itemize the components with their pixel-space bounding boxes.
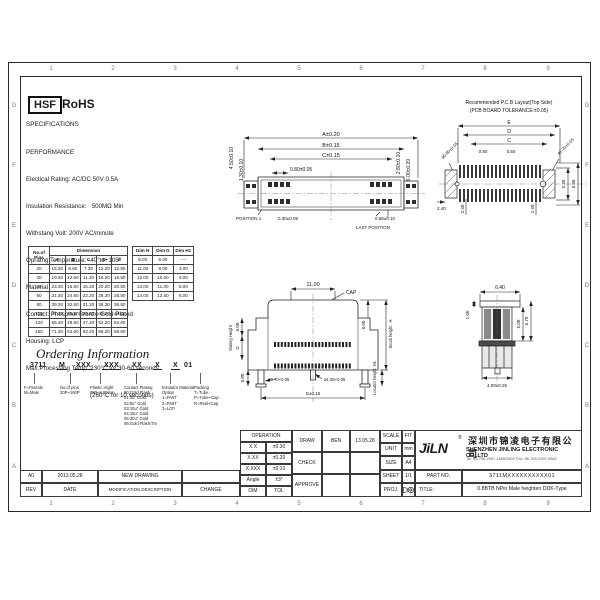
leader-line bbox=[200, 373, 201, 384]
hole-left-callout: ø0.80±0.05 bbox=[440, 141, 459, 160]
dim-header: DIM bbox=[240, 486, 266, 497]
position1-label: POSITION 1 bbox=[236, 216, 262, 221]
pin-dia-1: ø0.70+0.05 bbox=[268, 377, 290, 382]
cell: 16.60 bbox=[65, 283, 81, 292]
approve-date bbox=[350, 474, 380, 497]
legend-height: Plastic Hight 080=8.00mm bbox=[90, 385, 126, 395]
dim-d: D±0.15 bbox=[306, 391, 321, 396]
cell: 23.20 bbox=[81, 292, 97, 301]
zone-number: 5 bbox=[268, 63, 330, 75]
zone-number: 2 bbox=[82, 498, 144, 510]
zone-number: 6 bbox=[330, 498, 392, 510]
cell: 9.00 bbox=[153, 265, 173, 274]
dim-100: 1.00 bbox=[465, 310, 470, 319]
spec-line: PERFORMANCE bbox=[26, 148, 159, 157]
zone-letter: A bbox=[8, 436, 20, 497]
cell: 6.00 bbox=[153, 256, 173, 265]
zone-number: 3 bbox=[144, 498, 206, 510]
legend-packing: Packing T=Tube P=Tube+Cap R=Reel+Cap bbox=[194, 385, 230, 406]
cell: 12.60 bbox=[65, 274, 81, 283]
dim-8: 8.00 bbox=[361, 320, 366, 329]
cell: 47.20 bbox=[81, 319, 97, 328]
date-header: DATE bbox=[42, 483, 98, 497]
cell: 32.60 bbox=[65, 301, 81, 310]
approve-label: APPROVE bbox=[292, 474, 322, 497]
cell: 8.00 bbox=[133, 256, 153, 265]
dim-c: C bbox=[507, 138, 511, 144]
legend-plating: Contact Plating 00:Gold Flash 01:3u" Gol… bbox=[124, 385, 160, 427]
pcb-tolerance: (PCB BOARD TOLERANCE:±0.05) bbox=[470, 108, 549, 114]
cell: 31.30 bbox=[50, 292, 66, 301]
table-row: 3019.3012.6011.2016.2016.80 bbox=[29, 274, 128, 283]
col-header: A bbox=[50, 256, 66, 265]
leader-line bbox=[170, 373, 171, 384]
table-row: 16071.3064.6063.2068.2068.80 bbox=[29, 328, 128, 337]
modification-header: MODIFICATION DESCRIPTION bbox=[98, 483, 182, 497]
zone-number: 2 bbox=[82, 63, 144, 75]
sheet-value: 1/1 bbox=[402, 470, 415, 483]
dim-6: 6.00 bbox=[235, 322, 240, 331]
cell: 11.00 bbox=[133, 265, 153, 274]
scale-label: SCALE bbox=[380, 430, 402, 443]
spec-line: Housing: LCP bbox=[26, 337, 159, 346]
table-row: 11.009.003.00 bbox=[133, 265, 194, 274]
approve-name bbox=[322, 474, 350, 497]
cell: 16.20 bbox=[96, 274, 112, 283]
table-row: 8.006.00---- bbox=[133, 256, 194, 265]
tol-value: ±0.20 bbox=[266, 453, 292, 464]
zone-letter: B bbox=[582, 376, 592, 436]
dim-bot1: 0.30±0.05 bbox=[278, 216, 298, 221]
scale-value: FIT bbox=[402, 430, 415, 443]
third-angle-projection-icon bbox=[403, 486, 414, 494]
company-logo: JiLN bbox=[419, 440, 447, 456]
stock-height-label: Stock heightH bbox=[388, 319, 393, 348]
table-row: 6031.3024.6023.2028.2028.80 bbox=[29, 292, 128, 301]
dim-right2: 6.00±0.20 bbox=[406, 159, 412, 181]
drawing-title: 0.8BTB NPin Male heighten DDK-Type bbox=[462, 483, 582, 497]
cell: 52.20 bbox=[96, 319, 112, 328]
stock-height-text: Stock height bbox=[388, 325, 393, 349]
zone-letter: C bbox=[8, 316, 20, 376]
dim-h1: 5.40 bbox=[561, 179, 566, 188]
cell: 19.30 bbox=[50, 274, 66, 283]
zone-number: 1 bbox=[20, 63, 82, 75]
table-row: 13.0011.005.00 bbox=[133, 283, 194, 292]
connector-top-view: A±0.20 B±0.15 C±0.15 0.80±0.05 4.50±0.10… bbox=[228, 128, 435, 238]
tol-label: X.X bbox=[240, 442, 266, 453]
zone-number: 9 bbox=[516, 498, 580, 510]
cell: 12.00 bbox=[153, 292, 173, 301]
company-block: JiLN ® 深圳市锦凌电子有限公司 SHENZHEN JINLING ELEC… bbox=[415, 430, 582, 470]
check-label: CHECK bbox=[292, 452, 322, 474]
locator-height-text: Locator height bbox=[372, 368, 377, 395]
cell: 31.20 bbox=[81, 301, 97, 310]
cell: 14.00 bbox=[133, 292, 153, 301]
zone-letter: G bbox=[8, 76, 20, 136]
col-header: C bbox=[81, 256, 97, 265]
zone-number: 9 bbox=[516, 63, 580, 75]
proj-symbol-cell bbox=[402, 483, 415, 497]
col-header: Dim H bbox=[133, 247, 153, 256]
ordering-title: Ordering Information bbox=[36, 346, 149, 362]
operation-header: OPERATION bbox=[240, 430, 292, 442]
check-date bbox=[350, 452, 380, 474]
zone-number: 8 bbox=[454, 63, 516, 75]
unit-value: mm bbox=[402, 443, 415, 456]
cell: 71.30 bbox=[50, 328, 66, 337]
cell: 52.80 bbox=[112, 319, 128, 328]
rev-value: A0 bbox=[20, 470, 42, 483]
dim-right1: 2.80±0.10 bbox=[396, 152, 402, 174]
col-header: Dim H1 bbox=[173, 247, 193, 256]
draw-date: 13.05.28 bbox=[350, 430, 380, 452]
col-header: B bbox=[65, 256, 81, 265]
zone-letter: D bbox=[8, 256, 20, 316]
leader-line bbox=[70, 373, 71, 384]
cell: 63.20 bbox=[81, 328, 97, 337]
order-code-material: X bbox=[153, 362, 162, 370]
zone-number: 7 bbox=[392, 63, 454, 75]
cell: 55.30 bbox=[50, 319, 66, 328]
legend-material: Insulator Material Option 1=PA9T 2=PA6T … bbox=[162, 385, 198, 411]
cell: 11.00 bbox=[153, 283, 173, 292]
rev-header: REV bbox=[20, 483, 42, 497]
draw-name: BEN bbox=[322, 430, 350, 452]
dim-500: 5.00 bbox=[516, 319, 521, 328]
dim-080: 0.80 bbox=[240, 373, 245, 382]
hole-right-callout: ø1.20±0.05 bbox=[556, 137, 575, 156]
pcb-layout-view: Recommended P.C.B Layout(Top Side) (PCB … bbox=[435, 95, 593, 225]
zone-letter: C bbox=[582, 316, 592, 376]
zone-letter: A bbox=[582, 436, 592, 497]
cell: 3.00 bbox=[173, 265, 193, 274]
cell: 40 bbox=[29, 283, 50, 292]
cell: 39.30 bbox=[50, 301, 66, 310]
zone-number: 4 bbox=[206, 498, 268, 510]
cell: 5.00 bbox=[173, 283, 193, 292]
legend-line: M=Male bbox=[24, 390, 60, 395]
cell: 36.20 bbox=[96, 301, 112, 310]
dim-b: B±0.15 bbox=[322, 143, 339, 149]
cell: 16.80 bbox=[112, 274, 128, 283]
rev-description: NEW DRAWING bbox=[98, 470, 182, 483]
cell: 44.80 bbox=[112, 310, 128, 319]
cell: 15.30 bbox=[50, 265, 66, 274]
order-code-gender: M bbox=[57, 362, 67, 370]
cell: 28.20 bbox=[96, 292, 112, 301]
cell: 23.30 bbox=[50, 283, 66, 292]
tol-value: ±0.30 bbox=[266, 442, 292, 453]
cell: 48.60 bbox=[65, 319, 81, 328]
table-row: 8039.3032.6031.2036.2036.80 bbox=[29, 301, 128, 310]
cell: 4.00 bbox=[173, 274, 193, 283]
title-label: TITLE: bbox=[415, 483, 462, 497]
table-row: 12055.3048.6047.2052.2052.80 bbox=[29, 319, 128, 328]
cell: 40.60 bbox=[65, 310, 81, 319]
height-dimension-table: Dim H Dim G Dim H1 8.006.00---- 11.009.0… bbox=[132, 246, 194, 301]
last-position-label: LAST POSITION bbox=[356, 225, 390, 230]
cell: 39.20 bbox=[81, 310, 97, 319]
part-no-value: 3711MXXXXXXXXXX01 bbox=[462, 470, 582, 483]
mating-height-label: Mating Height bbox=[228, 324, 233, 351]
col-header: Dim G bbox=[153, 247, 173, 256]
dim-bot2: 0.65±0.10 bbox=[375, 216, 395, 221]
dim-pitch2: 0.50 bbox=[507, 149, 516, 154]
pin-dia-2: ø1.05+0.05 bbox=[324, 377, 346, 382]
specifications-title: SPECIFICATIONS bbox=[26, 121, 79, 128]
stock-height-h: H bbox=[388, 319, 393, 322]
hsf-logo: HSF bbox=[28, 96, 62, 114]
zone-number: 6 bbox=[330, 63, 392, 75]
cell: 68.20 bbox=[96, 328, 112, 337]
leader-line bbox=[34, 373, 35, 384]
order-code-pins: XXX bbox=[74, 362, 93, 370]
zone-number: 4 bbox=[206, 63, 268, 75]
cell: 80 bbox=[29, 301, 50, 310]
leader-line bbox=[136, 373, 137, 384]
cell: 68.80 bbox=[112, 328, 128, 337]
order-code-plating: XX bbox=[130, 362, 144, 370]
registered-mark-icon: ® bbox=[458, 435, 462, 441]
table-row: 4023.3016.6015.2020.2020.80 bbox=[29, 283, 128, 292]
table-row: 2015.308.607.2012.2012.80 bbox=[29, 265, 128, 274]
cap-label: CAP bbox=[346, 290, 357, 296]
locator-height-label: Locator heightH1 bbox=[372, 360, 377, 395]
zone-letter: E bbox=[8, 196, 20, 256]
legend-line: R=Reel+Cap bbox=[194, 401, 230, 406]
legend-line: 06:Gold Flash/Tin bbox=[124, 421, 160, 426]
change-header: CHANGE bbox=[182, 483, 240, 497]
proj-label: PROJ. bbox=[380, 483, 402, 497]
part-no-label: PART NO. bbox=[415, 470, 462, 483]
body-outline bbox=[479, 301, 520, 374]
cell: 28.80 bbox=[112, 292, 128, 301]
tol-label: X.XX bbox=[240, 453, 266, 464]
connector-front-view: 11.00 CAP 6.00 G Mating Height 8.00 Stoc… bbox=[228, 272, 405, 408]
connector-side-view: 6.40 1.00 5.00 5.70 4.00±0.25 bbox=[455, 275, 550, 400]
legend-line: 080=8.00mm bbox=[90, 390, 126, 395]
order-code-packing: X bbox=[171, 362, 180, 370]
cell: 44.20 bbox=[96, 310, 112, 319]
locator-height-h1: H1 bbox=[372, 360, 377, 366]
zone-number: 3 bbox=[144, 63, 206, 75]
zone-number: 1 bbox=[20, 498, 82, 510]
cell: 12.20 bbox=[96, 265, 112, 274]
table-row: 14.0012.006.00 bbox=[133, 292, 194, 301]
zone-number: 8 bbox=[454, 498, 516, 510]
tol-value: ±3° bbox=[266, 475, 292, 486]
pin-table-col0-header: No.of Pins bbox=[29, 247, 50, 265]
dim-640: 6.40 bbox=[495, 285, 505, 291]
cell: 100 bbox=[29, 310, 50, 319]
sheet-label: SHEET bbox=[380, 470, 402, 483]
spec-line: Withstang Volt: 200V AC/minute bbox=[26, 229, 159, 238]
size-label: SIZE bbox=[380, 456, 402, 470]
cell: 12.80 bbox=[112, 265, 128, 274]
cell: ---- bbox=[173, 256, 193, 265]
dim-11: 11.00 bbox=[306, 282, 319, 288]
dim-e: E bbox=[507, 120, 511, 126]
dim-d: D bbox=[507, 129, 511, 135]
dim-w2: 2.40 bbox=[460, 204, 465, 213]
dim-c: C±0.15 bbox=[322, 153, 340, 159]
tol-header: TOL bbox=[266, 486, 292, 497]
order-code-suffix: 01 bbox=[184, 362, 192, 369]
cell: 12.00 bbox=[133, 274, 153, 283]
cell: 10.00 bbox=[153, 274, 173, 283]
cell: 47.30 bbox=[50, 310, 66, 319]
pcb-title: Recommended P.C.B Layout(Top Side) bbox=[466, 100, 553, 106]
legend-gender: F=Female M=Male bbox=[24, 385, 60, 395]
pin-dimension-table: No.of Pins Dimension A B C D E 2015.308.… bbox=[28, 246, 128, 337]
rev-change-cell bbox=[182, 470, 240, 483]
zone-number: 5 bbox=[268, 498, 330, 510]
dim-a: A±0.20 bbox=[322, 132, 339, 138]
cell: 8.60 bbox=[65, 265, 81, 274]
tol-label: Angle bbox=[240, 475, 266, 486]
zone-number: 7 bbox=[392, 498, 454, 510]
col-header: E bbox=[112, 256, 128, 265]
size-value: A4 bbox=[402, 456, 415, 470]
zone-letter: B bbox=[8, 376, 20, 436]
cell: 30 bbox=[29, 274, 50, 283]
cell: 64.60 bbox=[65, 328, 81, 337]
dim-w3: 2.40 bbox=[530, 204, 535, 213]
cell: 20 bbox=[29, 265, 50, 274]
check-name bbox=[322, 452, 350, 474]
dim-400: 4.00±0.25 bbox=[487, 383, 507, 388]
dim-w1: 2.40 bbox=[437, 206, 446, 211]
legend-line: 3=LCP bbox=[162, 406, 198, 411]
table-row: 12.0010.004.00 bbox=[133, 274, 194, 283]
order-code-series: 3711 bbox=[30, 362, 46, 369]
cell: 36.80 bbox=[112, 301, 128, 310]
cell: 160 bbox=[29, 328, 50, 337]
dim-g: G bbox=[235, 346, 240, 350]
rohs-label: RoHS bbox=[62, 96, 95, 112]
dim-left1: 4.50±0.10 bbox=[229, 147, 235, 169]
col-header: D bbox=[96, 256, 112, 265]
zone-letter: D bbox=[582, 256, 592, 316]
cell: 13.00 bbox=[133, 283, 153, 292]
tol-value: ±0.10 bbox=[266, 464, 292, 475]
table-row: 10047.3040.6039.2044.2044.80 bbox=[29, 310, 128, 319]
draw-label: DRAW bbox=[292, 430, 322, 452]
unit-label: UNIT bbox=[380, 443, 402, 456]
tol-label: X.XXX bbox=[240, 464, 266, 475]
cell: 11.20 bbox=[81, 274, 97, 283]
dim-h2: 6.95 bbox=[571, 179, 576, 188]
dim-570: 5.70 bbox=[524, 316, 529, 325]
dim-left2: 1.30±0.10 bbox=[239, 159, 245, 181]
leader-line bbox=[100, 373, 101, 384]
cell: 20.20 bbox=[96, 283, 112, 292]
pad-rows bbox=[459, 172, 541, 196]
rev-date: 2013.05.28 bbox=[42, 470, 98, 483]
zone-letter: F bbox=[8, 136, 20, 196]
cell: 20.80 bbox=[112, 283, 128, 292]
cell: 60 bbox=[29, 292, 50, 301]
cell: 7.20 bbox=[81, 265, 97, 274]
pin-table-group-header: Dimension bbox=[50, 247, 128, 256]
cell: 6.00 bbox=[173, 292, 193, 301]
cell: 15.20 bbox=[81, 283, 97, 292]
drawing-sheet: 1 2 3 4 5 6 7 8 9 1 2 3 4 5 6 7 8 9 G F … bbox=[0, 0, 600, 600]
order-code-height: XXX bbox=[102, 362, 121, 370]
spec-line: Electical Rating: AC/DC 50V 0.5A bbox=[26, 175, 159, 184]
cell: 24.60 bbox=[65, 292, 81, 301]
spec-line: Insulation Resistance: 500MΩ Min bbox=[26, 202, 159, 211]
dim-pitch: 0.80±0.05 bbox=[290, 167, 312, 173]
dim-pitch1: 0.80 bbox=[479, 149, 488, 154]
cell: 120 bbox=[29, 319, 50, 328]
company-contact: Tel: 86-755-2997-1808/3902 Fax: 86-755-2… bbox=[466, 456, 557, 461]
